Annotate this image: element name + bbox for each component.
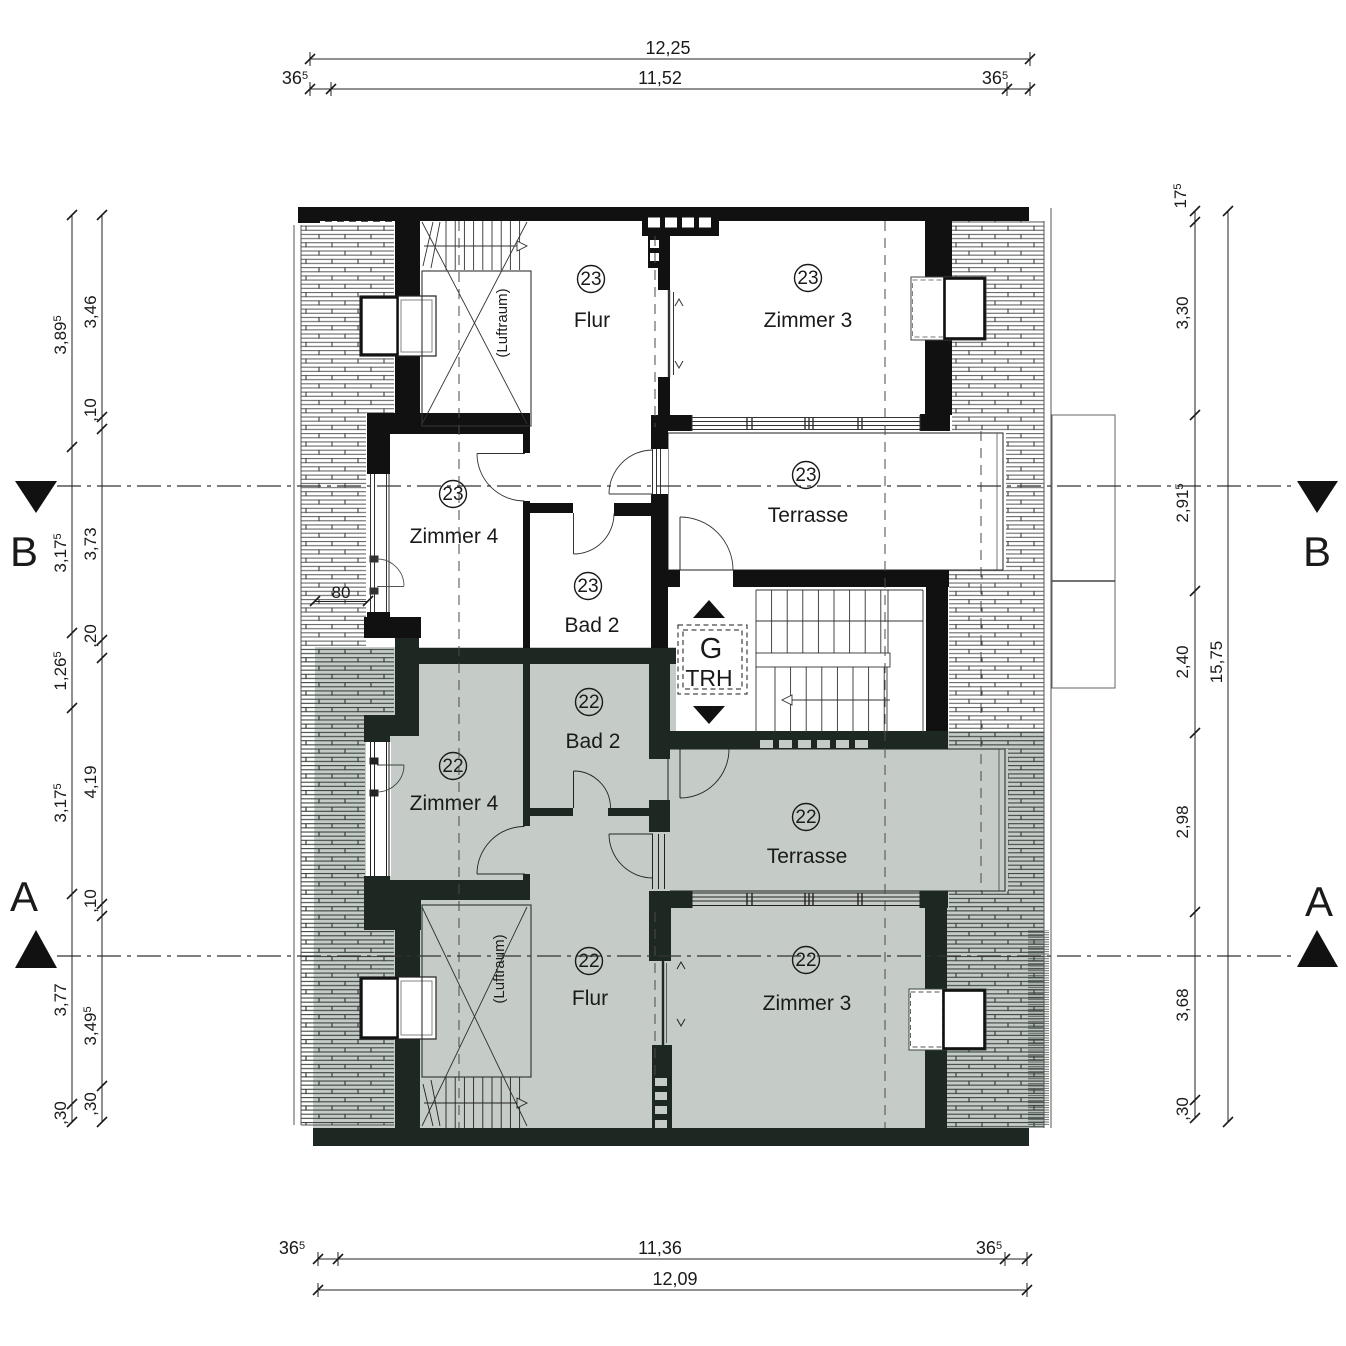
svg-text:,20: ,20 — [81, 624, 100, 648]
svg-text:,30: ,30 — [51, 1101, 70, 1125]
svg-text:,30: ,30 — [1173, 1097, 1192, 1121]
svg-text:TRH: TRH — [685, 665, 732, 691]
svg-text:22: 22 — [795, 950, 816, 971]
svg-text:15,75: 15,75 — [1207, 641, 1226, 684]
svg-text:22: 22 — [578, 692, 599, 713]
svg-text:,30: ,30 — [81, 1092, 100, 1116]
svg-text:Flur: Flur — [572, 987, 608, 1010]
svg-text:11,36: 11,36 — [638, 1238, 682, 1258]
svg-text:3,68: 3,68 — [1173, 988, 1192, 1021]
svg-text:2,98: 2,98 — [1173, 805, 1192, 838]
svg-text:3,73: 3,73 — [81, 527, 100, 560]
svg-text:Terrasse: Terrasse — [767, 845, 848, 868]
svg-text:23: 23 — [577, 576, 598, 597]
svg-text:23: 23 — [797, 268, 818, 289]
svg-text:Zimmer 4: Zimmer 4 — [410, 525, 499, 548]
svg-text:22: 22 — [442, 756, 463, 777]
svg-text:23: 23 — [442, 484, 463, 505]
svg-text:Zimmer 3: Zimmer 3 — [764, 309, 853, 332]
svg-text:Terrasse: Terrasse — [768, 504, 849, 527]
svg-text:,10: ,10 — [81, 398, 100, 422]
svg-text:2,40: 2,40 — [1173, 645, 1192, 678]
svg-text:Bad 2: Bad 2 — [565, 614, 620, 637]
svg-text:B: B — [10, 528, 38, 575]
svg-text:Bad 2: Bad 2 — [566, 730, 621, 753]
svg-text:Zimmer 3: Zimmer 3 — [763, 992, 852, 1015]
svg-text:B: B — [1303, 528, 1331, 575]
svg-text:4,19: 4,19 — [81, 765, 100, 798]
svg-text:A: A — [10, 873, 38, 920]
svg-text:80: 80 — [332, 583, 351, 602]
svg-text:12,25: 12,25 — [645, 38, 690, 58]
svg-text:(Luftraum): (Luftraum) — [494, 288, 511, 357]
svg-text:12,09: 12,09 — [652, 1269, 697, 1289]
svg-text:22: 22 — [578, 951, 599, 972]
svg-text:Zimmer 4: Zimmer 4 — [410, 792, 499, 815]
svg-text:3,77: 3,77 — [51, 983, 70, 1016]
svg-text:23: 23 — [795, 465, 816, 486]
svg-text:23: 23 — [580, 269, 601, 290]
svg-text:(Luftraum): (Luftraum) — [491, 934, 508, 1003]
svg-text:3,46: 3,46 — [81, 295, 100, 328]
svg-text:A: A — [1305, 878, 1333, 925]
svg-text:,10: ,10 — [81, 889, 100, 913]
svg-text:22: 22 — [795, 807, 816, 828]
svg-text:11,52: 11,52 — [638, 68, 682, 88]
svg-text:Flur: Flur — [574, 309, 610, 332]
svg-text:3,30: 3,30 — [1173, 296, 1192, 329]
svg-text:G: G — [700, 633, 723, 665]
